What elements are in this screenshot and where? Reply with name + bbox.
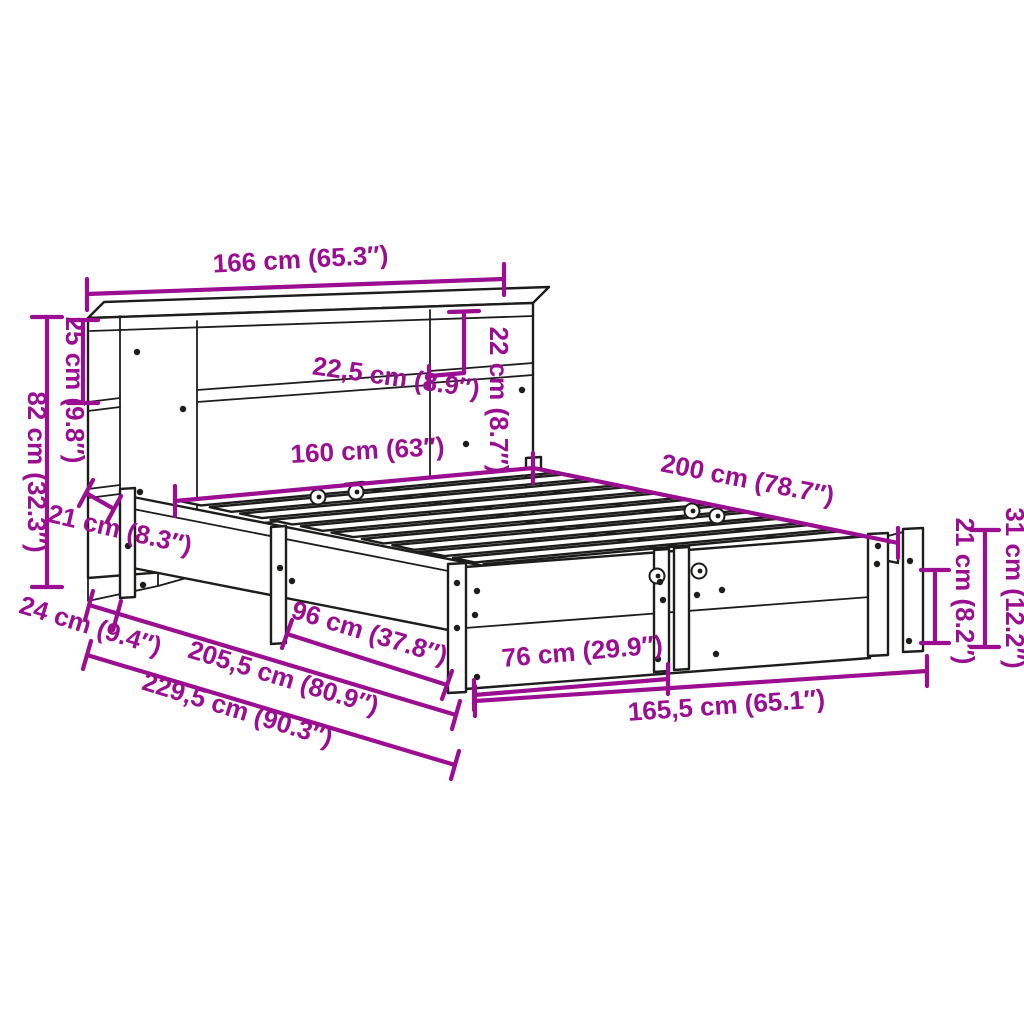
- screw-dot: [277, 565, 283, 571]
- dimension-label: 25 cm (9.8″): [60, 317, 90, 464]
- screw-dot: [474, 588, 480, 594]
- screw-dot: [874, 561, 880, 567]
- screw-dot: [472, 612, 478, 618]
- dimension-label: 21 cm (8.2″): [950, 518, 980, 665]
- screw-dot: [454, 625, 460, 631]
- screw-dot: [519, 387, 525, 393]
- screw-dot: [694, 592, 700, 598]
- corner-post-connector: [888, 532, 903, 536]
- dimension-label: 22 cm (8.7″): [484, 327, 514, 474]
- round-fitting-pin: [698, 569, 703, 574]
- diagram-canvas: 166 cm (65.3″) 25 cm (9.8″) 82 cm (32.3″…: [0, 0, 1024, 1024]
- screw-dot: [134, 349, 140, 355]
- screw-dot: [289, 578, 295, 584]
- screw-dot: [463, 441, 469, 447]
- round-fitting-pin: [656, 574, 661, 579]
- dimension-label: 166 cm (65.3″): [212, 239, 389, 278]
- screw-dot: [907, 558, 913, 564]
- screw-dot: [454, 580, 460, 586]
- screw-dot: [660, 597, 666, 603]
- dimension-headboard-height: 82 cm (32.3″): [22, 317, 62, 587]
- screw-dot: [140, 582, 146, 588]
- dimension-base-depth: 24 cm (9.4″): [16, 590, 165, 662]
- screw-dot: [180, 406, 186, 412]
- dimension-label: 31 cm (12.2″): [1000, 507, 1024, 668]
- screw-dot: [657, 579, 663, 585]
- screw-dot: [713, 651, 719, 657]
- bed-dimension-diagram: 166 cm (65.3″) 25 cm (9.8″) 82 cm (32.3″…: [0, 0, 1024, 1024]
- round-fitting-pin: [355, 490, 360, 495]
- screw-dot: [137, 489, 143, 495]
- screw-dot: [906, 638, 912, 644]
- bed-leg-middle: [271, 526, 286, 644]
- round-fitting-pin: [317, 495, 322, 500]
- dimension-label: 82 cm (32.3″): [22, 391, 52, 552]
- far-corner-post: [903, 528, 923, 652]
- dimension-rail-height: 21 cm (8.2″): [921, 518, 980, 665]
- round-fitting-pin: [716, 514, 721, 519]
- screw-dot: [875, 543, 881, 549]
- round-fitting-pin: [691, 509, 696, 514]
- foot-right-post: [868, 533, 888, 656]
- screw-dot: [719, 587, 725, 593]
- foot-center-post-b: [674, 547, 689, 670]
